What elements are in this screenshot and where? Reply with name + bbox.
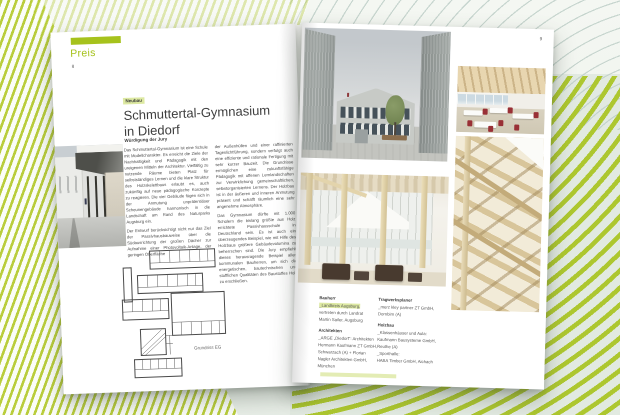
timber-tower-right (418, 31, 451, 154)
category-label-wrap: Neubau (123, 92, 223, 105)
floor (298, 268, 446, 286)
footer-green-rule (320, 372, 396, 378)
body-column-1: Das Schmuttertal-Gymnasium ist eine Schu… (124, 144, 212, 261)
page-right: 9 (292, 23, 554, 390)
table (490, 108, 508, 114)
credit-line: Martin Sailer, Augsburg (319, 316, 378, 325)
photo-timber-structure (451, 136, 544, 312)
photo-hall-interior (298, 173, 449, 287)
paving (57, 216, 126, 248)
page-number-left: 8 (72, 64, 75, 69)
column (87, 176, 91, 220)
entrance (354, 129, 368, 144)
chair (534, 112, 539, 118)
chair (514, 124, 519, 130)
floor-plan (116, 246, 253, 383)
chair (483, 109, 488, 115)
credits-column-2: Tragwerksplaner _merz kley partner ZT Gm… (377, 296, 443, 366)
person (347, 93, 349, 97)
credits-column-1: Bauherr _Landkreis Augsburg, vertreten d… (317, 294, 378, 371)
photo-courtyard (301, 28, 451, 162)
table (474, 122, 497, 128)
window-row (339, 123, 410, 136)
ottoman (407, 272, 422, 281)
chair (499, 120, 504, 126)
paragraph: Das Schmuttertal-Gymnasium ist eine Schu… (124, 144, 211, 225)
paragraph: der Außenhüllen und einer raffinierten T… (215, 141, 295, 210)
window-band (457, 94, 508, 105)
section-bar (71, 36, 121, 45)
page-number-right: 9 (540, 36, 543, 41)
ottoman (354, 271, 369, 280)
wood-bench (382, 135, 407, 140)
chair (467, 120, 472, 126)
section-label: Preis (70, 47, 96, 60)
sofa (322, 263, 351, 279)
category-label: Neubau (123, 97, 145, 104)
credit-line: HABA Timber GmbH, Aichach (377, 357, 441, 366)
photo-classroom (456, 66, 546, 134)
timber-wall (105, 172, 125, 221)
wood-ceiling (457, 66, 546, 95)
photo-corridor (55, 144, 127, 248)
person (84, 198, 86, 204)
brochure-spread-scene: Preis 8 Neubau Schmuttertal-Gymnasium in… (0, 0, 620, 415)
sofa (375, 265, 404, 281)
page-left: Preis 8 Neubau Schmuttertal-Gymnasium in… (50, 24, 308, 395)
table (464, 110, 483, 116)
chair (508, 107, 513, 113)
credit-line: München (317, 362, 376, 371)
column (95, 176, 99, 220)
chair (488, 126, 493, 132)
